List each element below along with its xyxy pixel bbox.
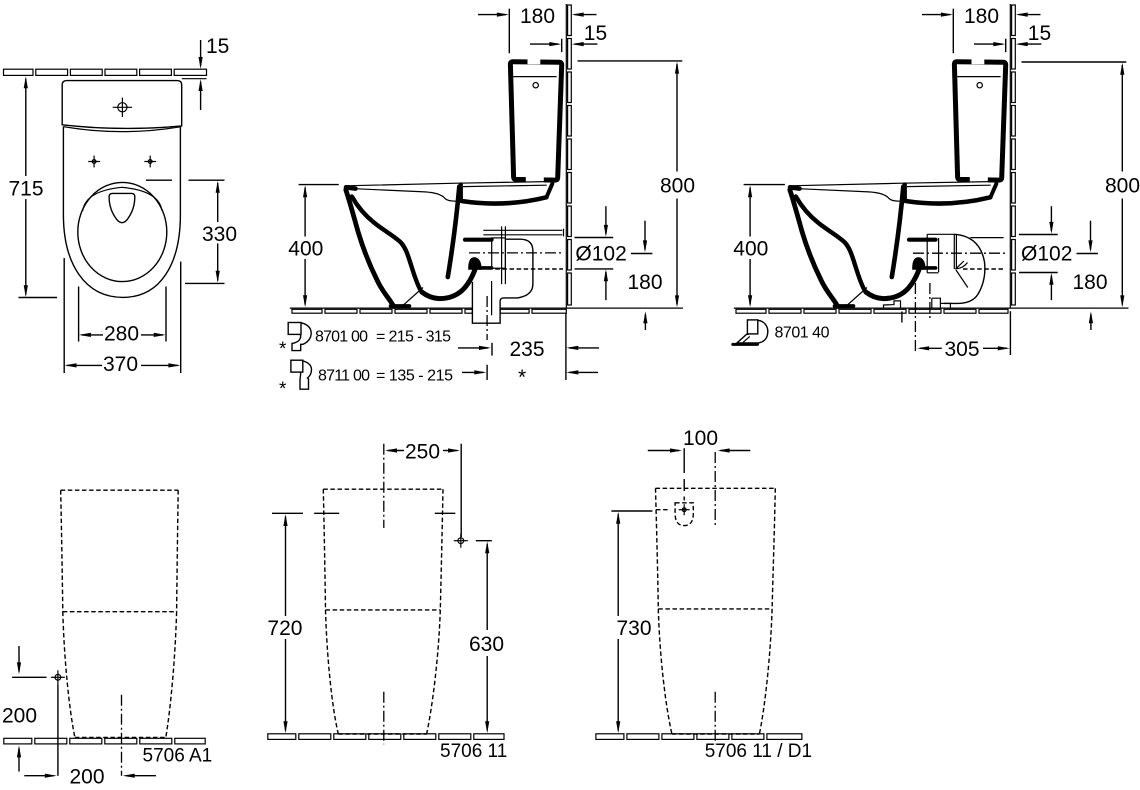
- svg-text:100: 100: [683, 427, 718, 450]
- svg-text:15: 15: [206, 35, 229, 58]
- svg-text:15: 15: [1028, 22, 1051, 45]
- svg-text:= 135 - 215: = 135 - 215: [376, 368, 453, 385]
- svg-text:15: 15: [584, 22, 607, 45]
- svg-text:800: 800: [660, 175, 695, 198]
- svg-text:8701 00: 8701 00: [315, 329, 368, 346]
- svg-text:180: 180: [1073, 271, 1108, 294]
- svg-text:*: *: [279, 379, 287, 400]
- svg-text:180: 180: [520, 5, 555, 28]
- svg-text:8701 40: 8701 40: [775, 325, 830, 342]
- svg-text:5706 A1: 5706 A1: [143, 746, 213, 767]
- svg-text:400: 400: [288, 237, 323, 260]
- svg-text:400: 400: [733, 237, 768, 260]
- svg-text:715: 715: [9, 178, 44, 201]
- svg-text:5706 11: 5706 11: [440, 741, 507, 762]
- svg-text:= 215 - 315: = 215 - 315: [376, 329, 451, 346]
- svg-text:*: *: [279, 339, 287, 360]
- svg-text:630: 630: [469, 633, 504, 656]
- svg-text:180: 180: [628, 271, 663, 294]
- svg-text:720: 720: [267, 617, 302, 640]
- svg-text:235: 235: [510, 338, 545, 361]
- svg-text:250: 250: [405, 441, 440, 464]
- svg-text:200: 200: [2, 705, 37, 728]
- svg-text:Ø102: Ø102: [1021, 243, 1072, 266]
- svg-text:Ø102: Ø102: [575, 243, 626, 266]
- svg-text:730: 730: [617, 617, 652, 640]
- svg-text:200: 200: [70, 766, 105, 789]
- svg-text:8711 00: 8711 00: [318, 368, 370, 385]
- svg-text:330: 330: [202, 223, 237, 246]
- svg-text:5706 11 / D1: 5706 11 / D1: [705, 741, 812, 762]
- svg-text:800: 800: [1105, 175, 1140, 198]
- svg-text:305: 305: [945, 338, 980, 361]
- svg-text:370: 370: [103, 353, 138, 376]
- svg-text:280: 280: [104, 323, 139, 346]
- svg-text:180: 180: [964, 5, 999, 28]
- svg-text:*: *: [518, 366, 526, 389]
